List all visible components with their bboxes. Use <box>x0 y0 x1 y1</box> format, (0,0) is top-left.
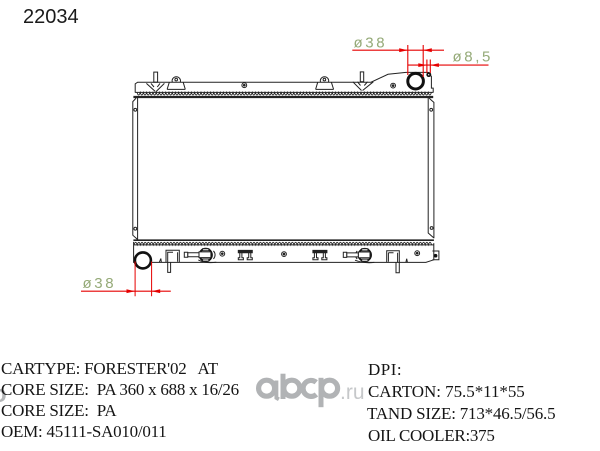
svg-text:ø38: ø38 <box>354 34 388 51</box>
svg-text:ø38: ø38 <box>83 275 117 292</box>
svg-text:ø8,5: ø8,5 <box>453 48 493 65</box>
